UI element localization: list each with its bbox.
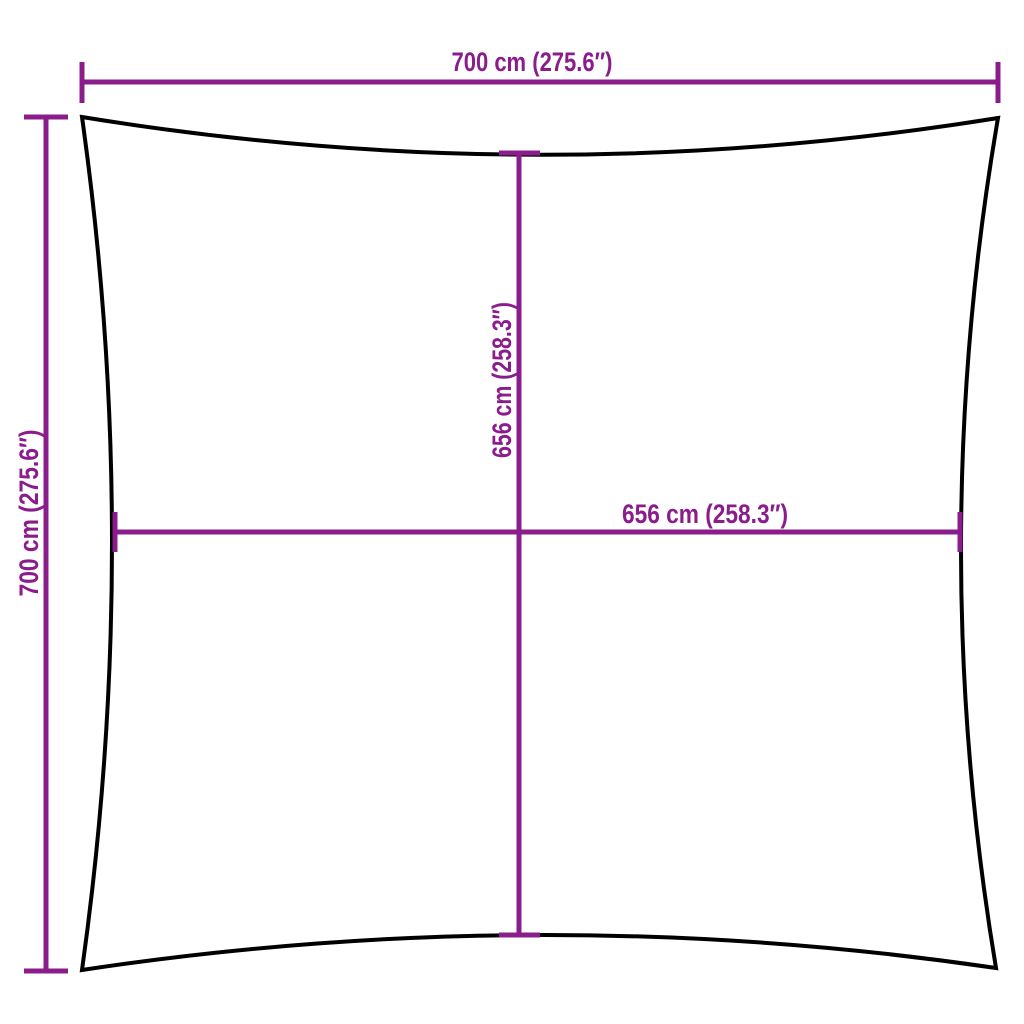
sail-outline (82, 117, 998, 970)
top-dimension-label: 700 cm (275.6″) (452, 47, 613, 77)
inner-horizontal-dimension-label: 656 cm (258.3″) (622, 499, 788, 529)
left-dimension-label: 700 cm (275.6″) (14, 430, 44, 597)
inner-vertical-dimension: 656 cm (258.3″) (487, 153, 540, 935)
dimension-diagram-svg: 700 cm (275.6″) 700 cm (275.6″) 656 cm (… (0, 0, 1024, 1024)
dimension-diagram: 700 cm (275.6″) 700 cm (275.6″) 656 cm (… (0, 0, 1024, 1024)
top-dimension: 700 cm (275.6″) (82, 47, 998, 103)
inner-horizontal-dimension: 656 cm (258.3″) (115, 499, 960, 552)
inner-vertical-dimension-label: 656 cm (258.3″) (487, 302, 517, 458)
left-dimension: 700 cm (275.6″) (14, 117, 68, 971)
